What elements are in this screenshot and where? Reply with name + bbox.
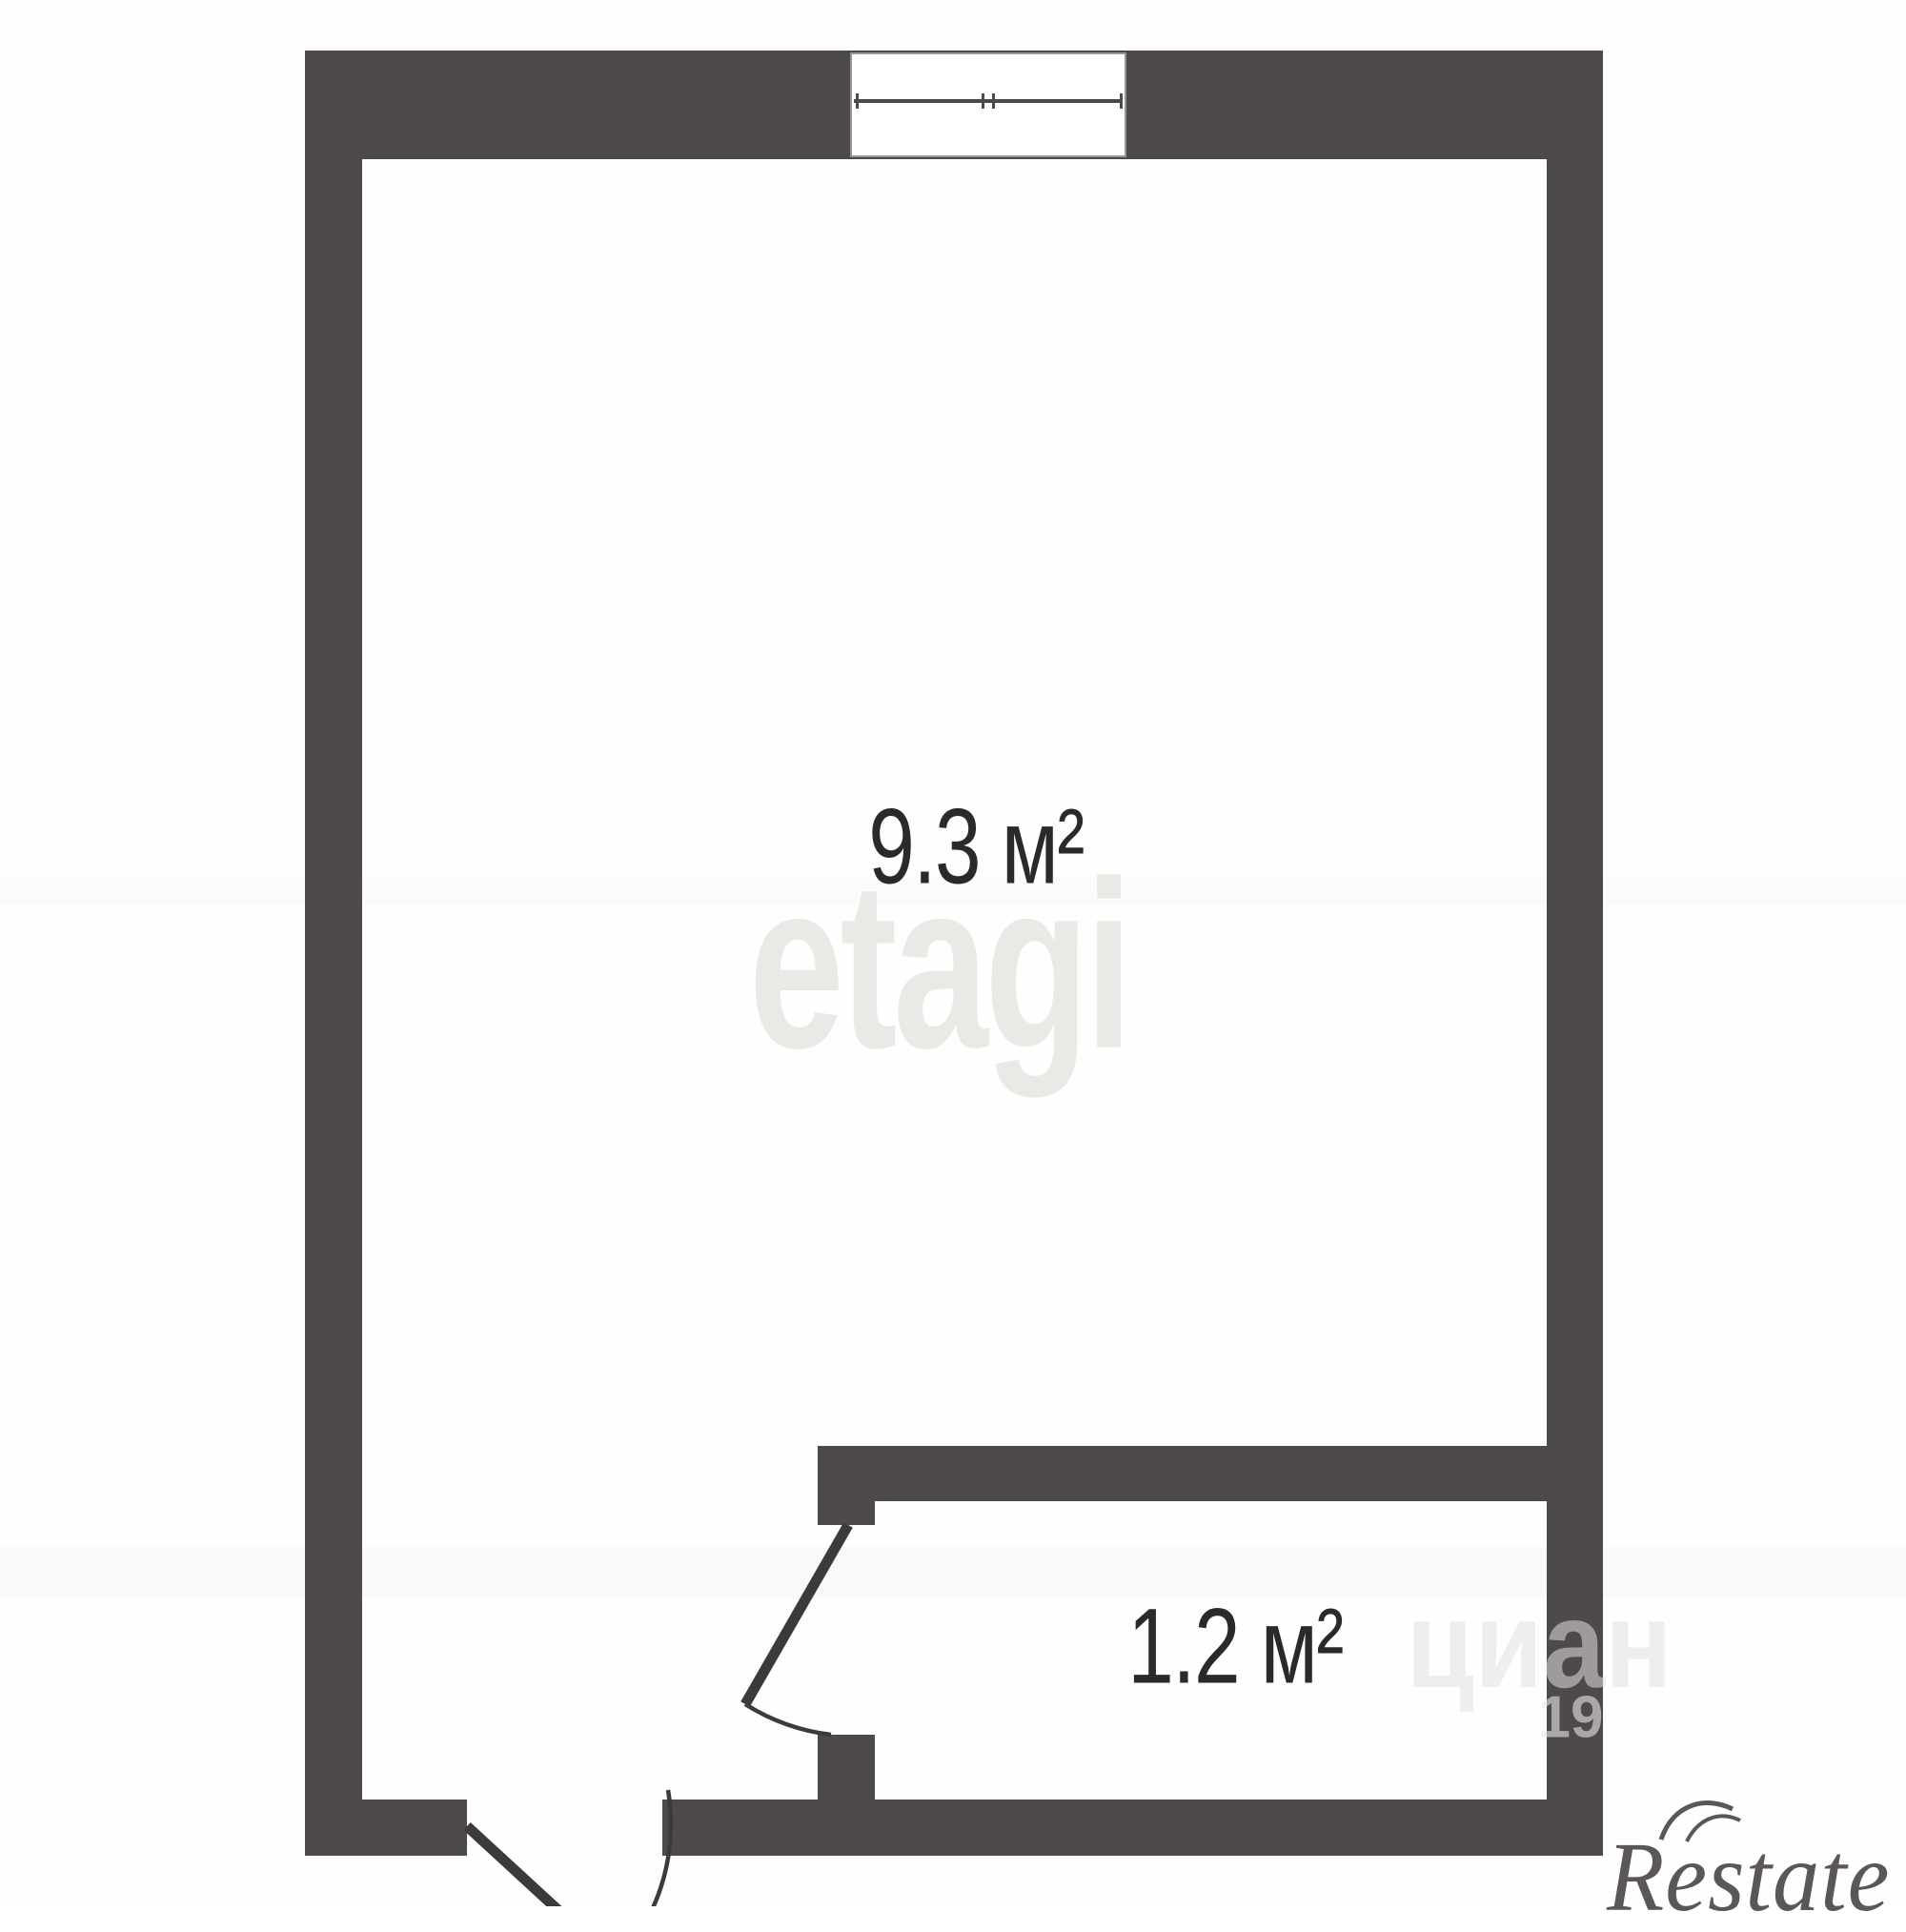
- interior-door-swing-arc: [745, 1704, 831, 1735]
- entry-door-leaf: [467, 1826, 562, 1906]
- watermark-number-fragment: 19: [1538, 1684, 1604, 1752]
- interior-door-leaf: [745, 1525, 848, 1704]
- restate-logo-text: Restate: [1607, 1828, 1890, 1927]
- entry-door-swing-arc: [652, 1790, 671, 1906]
- floor-plan: 9.3 м² 1.2 м² etagi циан 19 Restate: [0, 0, 1906, 1906]
